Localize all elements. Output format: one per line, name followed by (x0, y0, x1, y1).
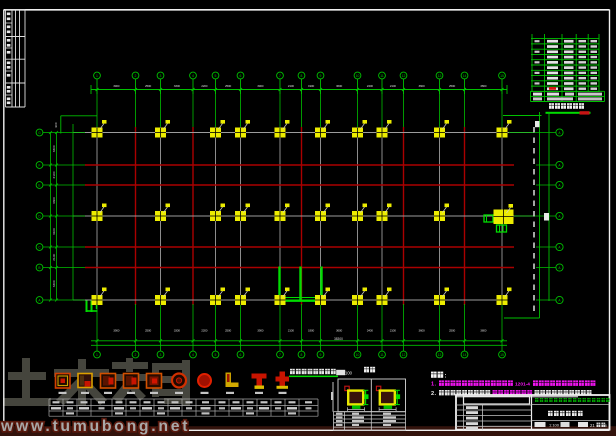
svg-text:14: 14 (463, 74, 467, 78)
svg-text:3900: 3900 (113, 329, 120, 333)
svg-text:2100: 2100 (52, 171, 56, 178)
svg-text:3900: 3900 (113, 84, 120, 88)
svg-text:2100: 2100 (390, 329, 397, 333)
svg-text:8: 8 (301, 74, 303, 78)
svg-text:2100: 2100 (390, 84, 397, 88)
svg-text:3800: 3800 (480, 84, 487, 88)
svg-text:3300: 3300 (174, 84, 181, 88)
svg-text:9: 9 (320, 353, 322, 357)
svg-text:1: 1 (96, 353, 98, 357)
svg-text:4: 4 (192, 353, 194, 357)
svg-text:7: 7 (279, 353, 281, 357)
svg-text:12: 12 (402, 74, 406, 78)
svg-text:2500: 2500 (145, 329, 152, 333)
svg-text:3400: 3400 (52, 280, 56, 287)
svg-text:3800: 3800 (480, 329, 487, 333)
svg-text:12: 12 (402, 353, 406, 357)
svg-text:3100: 3100 (52, 228, 56, 235)
svg-text:3600: 3600 (418, 84, 425, 88)
svg-text:2500: 2500 (225, 84, 232, 88)
svg-text:1201-4: 1201-4 (515, 381, 530, 387)
svg-text:2200: 2200 (201, 84, 208, 88)
svg-text:5: 5 (215, 353, 217, 357)
svg-text:2100: 2100 (288, 84, 295, 88)
svg-text:4: 4 (192, 74, 194, 78)
svg-text:F: F (39, 163, 41, 167)
svg-text:2100: 2100 (52, 254, 56, 261)
svg-text:2500: 2500 (145, 84, 152, 88)
svg-text:E: E (38, 183, 40, 187)
svg-text:3600: 3600 (336, 84, 343, 88)
svg-text:2400: 2400 (367, 84, 374, 88)
svg-text:3: 3 (160, 74, 162, 78)
svg-text:14: 14 (463, 353, 467, 357)
svg-text:2: 2 (135, 353, 137, 357)
svg-text:15: 15 (500, 353, 504, 357)
svg-text:1900: 1900 (308, 84, 315, 88)
svg-text:11: 11 (380, 74, 384, 78)
svg-text:3600: 3600 (336, 329, 343, 333)
svg-text:21: 21 (590, 423, 595, 428)
svg-text:8: 8 (301, 353, 303, 357)
svg-text:18: 18 (603, 424, 607, 428)
svg-text:38300: 38300 (334, 337, 343, 341)
svg-text:5: 5 (215, 74, 217, 78)
svg-text:2200: 2200 (201, 329, 208, 333)
svg-text:900: 900 (54, 122, 58, 127)
svg-text:6: 6 (240, 353, 242, 357)
svg-text:13: 13 (438, 74, 442, 78)
svg-text:3300: 3300 (52, 145, 56, 152)
svg-text:2400: 2400 (367, 329, 374, 333)
svg-text:2500: 2500 (449, 84, 456, 88)
svg-text:3300: 3300 (174, 329, 181, 333)
svg-text:2500: 2500 (449, 329, 456, 333)
svg-text:6: 6 (240, 74, 242, 78)
svg-text::: : (445, 373, 447, 379)
svg-text:13: 13 (438, 353, 442, 357)
svg-text:9: 9 (320, 74, 322, 78)
svg-text:1:100: 1:100 (549, 423, 560, 428)
svg-text:1: 1 (96, 74, 98, 78)
svg-text:1900: 1900 (308, 329, 315, 333)
svg-text:2: 2 (135, 74, 137, 78)
svg-text:3600: 3600 (418, 329, 425, 333)
svg-text:3900: 3900 (257, 329, 264, 333)
svg-text:3900: 3900 (257, 84, 264, 88)
svg-text:3: 3 (160, 353, 162, 357)
svg-text:10: 10 (356, 353, 360, 357)
svg-text:2500: 2500 (225, 329, 232, 333)
svg-text:10: 10 (356, 74, 360, 78)
svg-text:B: B (38, 266, 40, 270)
svg-text:www.tumubong.net: www.tumubong.net (0, 418, 190, 435)
svg-text:3300: 3300 (52, 197, 56, 204)
svg-text:11: 11 (380, 353, 384, 357)
svg-text:15: 15 (500, 74, 504, 78)
svg-text:2100: 2100 (288, 329, 295, 333)
svg-text:7: 7 (279, 74, 281, 78)
